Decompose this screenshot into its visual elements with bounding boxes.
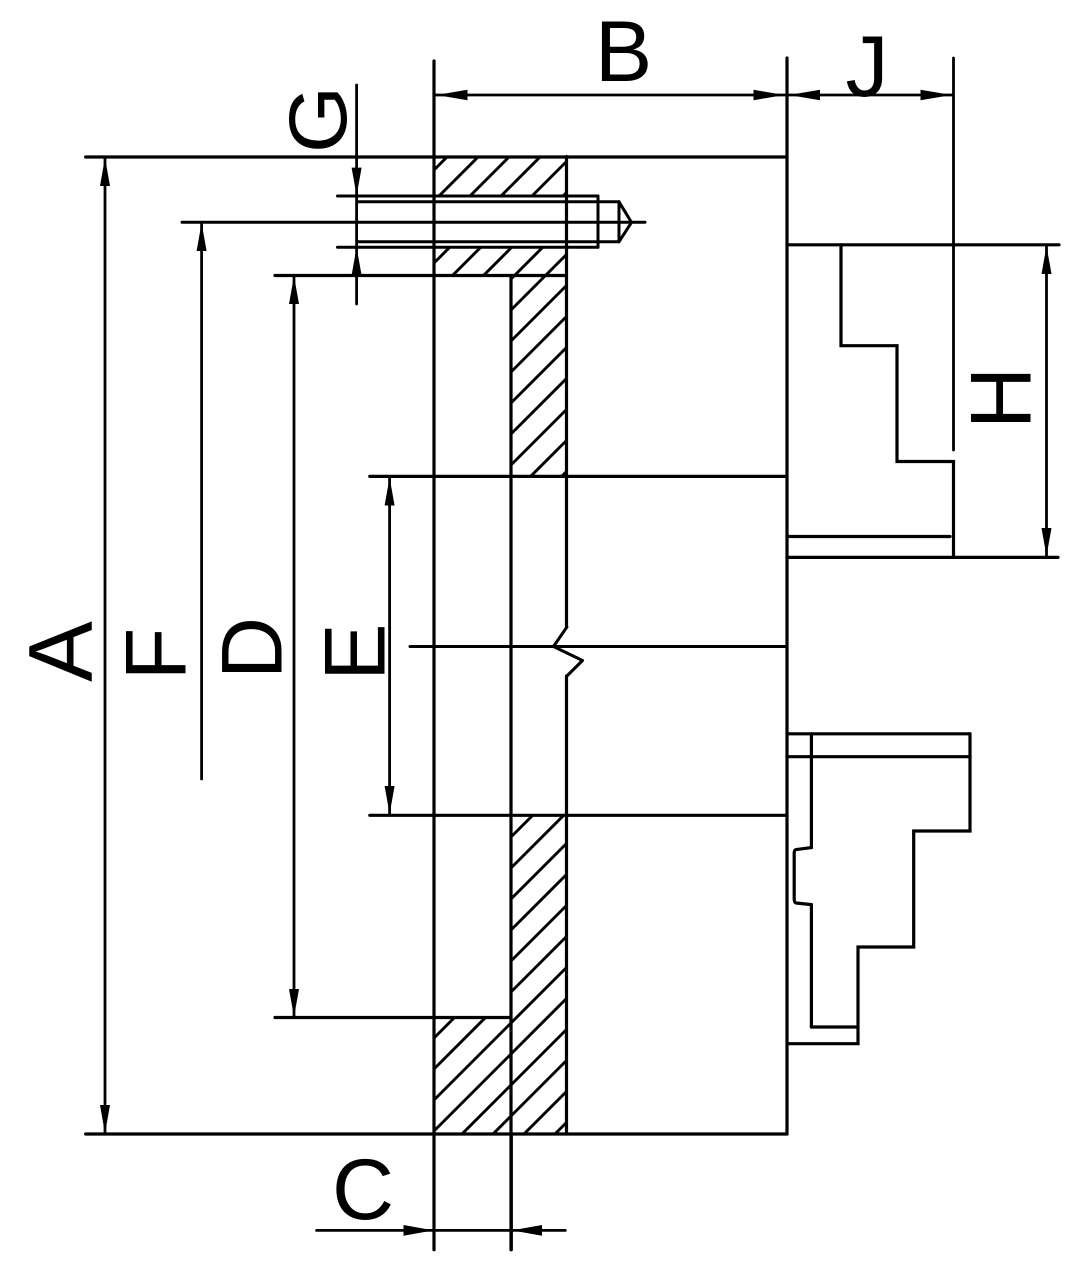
svg-text:G: G	[272, 86, 363, 153]
svg-text:E: E	[308, 623, 404, 680]
svg-text:B: B	[595, 4, 652, 100]
svg-text:D: D	[205, 617, 301, 679]
svg-text:A: A	[11, 621, 112, 682]
svg-text:H: H	[954, 367, 1050, 429]
svg-text:F: F	[109, 628, 205, 681]
svg-text:C: C	[332, 1142, 394, 1238]
svg-text:J: J	[846, 19, 889, 115]
